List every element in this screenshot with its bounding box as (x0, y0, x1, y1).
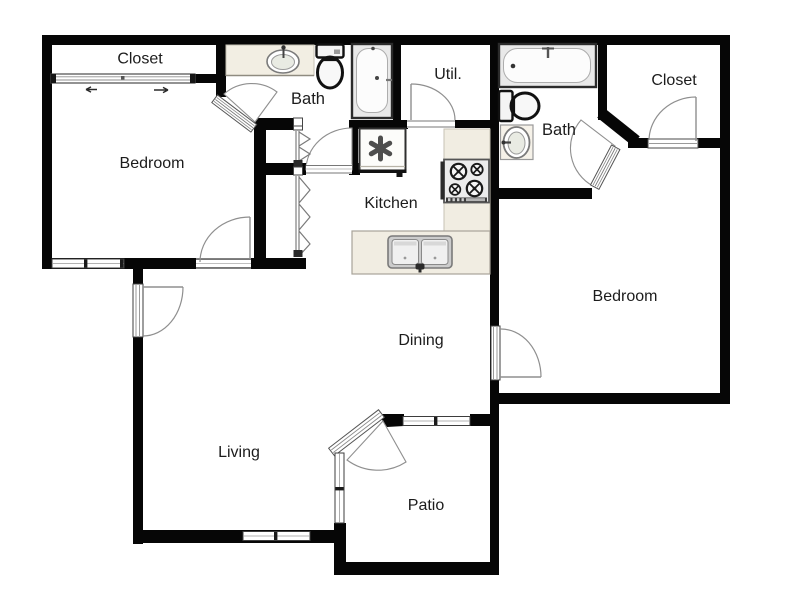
svg-text:Bedroom: Bedroom (593, 288, 658, 305)
svg-text:Bath: Bath (542, 121, 576, 139)
svg-text:Living: Living (218, 444, 260, 461)
svg-text:Bath: Bath (291, 90, 325, 108)
svg-text:Util.: Util. (434, 66, 462, 83)
svg-text:Closet: Closet (651, 72, 697, 89)
svg-text:Bedroom: Bedroom (120, 155, 185, 172)
svg-text:Dining: Dining (398, 332, 443, 349)
svg-text:Patio: Patio (408, 497, 445, 514)
svg-text:Kitchen: Kitchen (364, 195, 417, 212)
svg-text:Closet: Closet (117, 51, 163, 68)
